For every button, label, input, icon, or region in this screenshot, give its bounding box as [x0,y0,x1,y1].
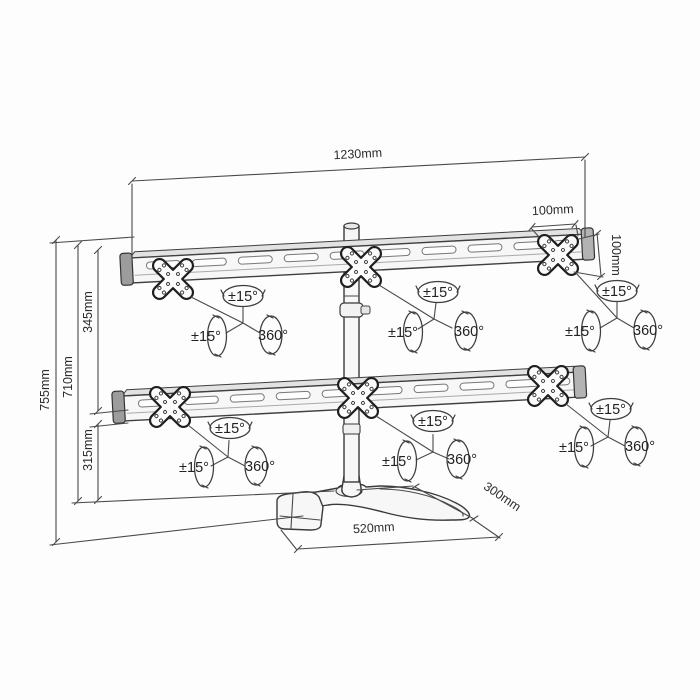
dimension-upper-offset: 345mm [81,247,102,415]
top-rail-right-cap [581,228,595,261]
swivel-label: ±15° [388,325,418,341]
pole-collar [340,303,363,317]
dimension-diagram: 1230mm 100mm 100mm 755mm 710mm 345mm [0,0,700,700]
tilt-label: ±15° [596,402,626,418]
base-pad [277,492,323,530]
diagram-svg: 1230mm 100mm 100mm 755mm 710mm 345mm [0,0,700,700]
rotate-label: 360° [447,452,477,468]
tilt-label: ±15° [418,414,448,430]
pole-top-cap [344,223,359,229]
rotate-label: 360° [454,324,484,340]
swivel-label: ±15° [565,324,595,340]
rotation-cluster-bottom-left: ±15° ±15° 360° [179,418,275,489]
dimension-lower-offset: 315mm [81,421,102,504]
rotation-cluster-top-right: ±15° ±15° 360° [565,273,663,352]
pole-lower-collar [343,424,360,434]
rotate-label: 360° [633,323,663,339]
dim-vesa-width-label: 100mm [532,202,574,218]
tilt-label: ±15° [423,285,453,301]
dim-total-height-label: 755mm [38,369,52,411]
dim-lower-offset-label: 315mm [81,429,95,471]
rotation-cluster-bottom-center: ±15° ±15° 360° [376,411,477,483]
rotation-cluster-top-left: ±15° ±15° 360° [191,286,288,358]
tilt-label: ±15° [602,284,632,300]
dimension-total-height: 755mm [38,237,60,546]
pole-collar-knob [361,306,370,314]
bottom-rail-left-cap [112,391,126,424]
rotation-cluster-top-center: ±15° ±15° 360° [379,282,484,354]
swivel-label: ±15° [179,460,209,476]
tilt-label: ±15° [228,289,258,305]
dim-vesa-height-label: 100mm [609,234,623,276]
rotate-label: 360° [245,459,275,475]
dim-base-depth-label: 300mm [481,479,523,514]
dim-upper-offset-label: 345mm [81,291,95,333]
bottom-rail-right-cap [573,366,587,399]
dim-base-length-label: 520mm [353,520,395,537]
top-rail-left-cap [120,253,134,286]
rotate-label: 360° [258,328,288,344]
tilt-label: ±15° [215,421,245,437]
swivel-label: ±15° [559,440,589,456]
dimension-column-height: 710mm [61,242,82,505]
swivel-label: ±15° [382,454,412,470]
dim-column-height-label: 710mm [61,356,75,398]
rotate-label: 360° [625,439,655,455]
rotation-cluster-bottom-right: ±15° ±15° 360° [559,399,655,469]
dim-rail-length-label: 1230mm [333,146,382,163]
swivel-label: ±15° [191,329,221,345]
